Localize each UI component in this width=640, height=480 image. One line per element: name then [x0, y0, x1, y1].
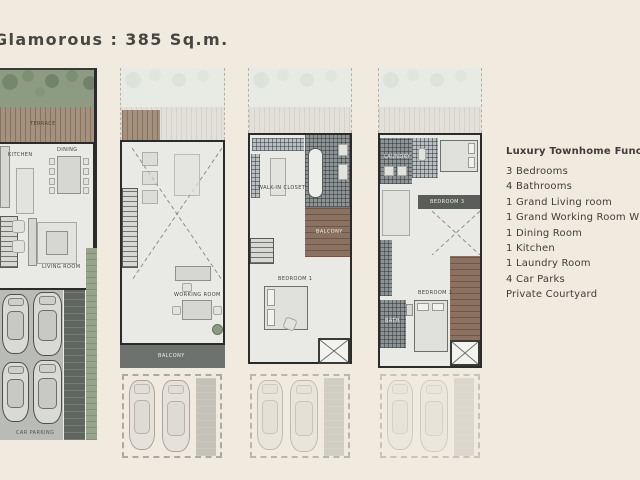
pillow	[267, 289, 275, 306]
car	[2, 294, 29, 354]
bathroom2	[380, 300, 406, 348]
ghost-courtyard	[249, 68, 351, 107]
ghost-courtyard	[379, 68, 481, 107]
car-roof	[134, 400, 151, 434]
closet-cabinet	[382, 190, 410, 236]
nightstand	[406, 304, 413, 316]
bedroom2-label: BEDROOM 2	[418, 290, 452, 296]
elevator-cross-icon	[320, 340, 348, 362]
armchair	[12, 240, 25, 253]
washing-machine	[384, 166, 394, 176]
ghost-terrace	[379, 107, 481, 133]
plant-icon	[212, 324, 223, 335]
private-courtyard	[0, 68, 97, 109]
dining-chair	[83, 178, 89, 185]
kitchen-island	[16, 168, 34, 214]
car-hood	[392, 384, 407, 393]
ghost-paved-strip	[324, 378, 344, 456]
wardrobe-run	[252, 138, 304, 151]
ghost-car	[290, 380, 318, 452]
upper-terrace-deck	[122, 110, 160, 140]
floorplan-presentation: Glamorous : 385 Sq.m. TERRACE KITCHEN DI…	[0, 0, 640, 480]
car-roof	[7, 311, 25, 340]
washing-machine	[397, 166, 407, 176]
stair-void-cross-icon	[432, 211, 480, 255]
car-roof	[7, 379, 25, 408]
ghost-car	[162, 380, 190, 452]
bathtub	[308, 148, 323, 198]
car	[2, 362, 29, 422]
dining-chair	[49, 168, 55, 175]
ghost-terrace	[249, 107, 351, 133]
elevator-shaft	[318, 338, 350, 364]
dining-chair	[49, 158, 55, 165]
pillow	[468, 143, 475, 154]
bath-label: BATH	[385, 318, 400, 324]
pillow	[432, 303, 444, 311]
car-hood	[262, 384, 277, 393]
balcony-label: BALCONY	[158, 353, 185, 359]
dining-chair	[83, 168, 89, 175]
plan-ground-floor: TERRACE KITCHEN DINING LIVING ROOM CAR P…	[0, 68, 97, 440]
dining-chair	[83, 187, 89, 194]
dining-chair	[49, 187, 55, 194]
elevator-shaft	[450, 340, 480, 366]
wardrobe-run	[251, 154, 260, 198]
working-desk	[175, 266, 211, 281]
bedroom1-label: BEDROOM 1	[278, 276, 312, 282]
walk-in-closet-label: WALK-IN CLOSET	[258, 185, 305, 191]
ghost-paved-strip	[454, 378, 474, 456]
dining-chair	[49, 178, 55, 185]
paved-strip	[64, 290, 85, 440]
staircase	[250, 238, 274, 264]
coffee-table	[46, 231, 68, 255]
car-roof	[392, 400, 409, 434]
feature-item: 4 Bathrooms	[506, 179, 640, 194]
ghost-car	[257, 380, 283, 450]
ghost-paved-strip	[196, 378, 216, 456]
ghost-courtyard	[121, 68, 224, 107]
pillow	[267, 309, 275, 326]
car-hood	[8, 298, 24, 306]
pillow	[468, 157, 475, 168]
feature-item: 1 Laundry Room	[506, 256, 640, 271]
ghost-car	[129, 380, 155, 450]
feature-item: 1 Dining Room	[506, 226, 640, 241]
ghost-cabinet	[142, 152, 158, 166]
working-room-label: WORKING ROOM	[174, 292, 221, 298]
car-roof	[295, 401, 313, 436]
plan-second-floor: WORKING ROOM BALCONY	[120, 68, 225, 460]
armchair	[12, 220, 25, 233]
balcony-label: BALCONY	[316, 229, 343, 235]
feature-item: 1 Grand Working Room With	[506, 210, 640, 225]
desk-chair	[213, 306, 222, 315]
page-title: Glamorous : 385 Sq.m.	[0, 30, 229, 49]
feature-list: Luxury Townhome Function : 3 Bedrooms 4 …	[506, 146, 640, 303]
car	[33, 360, 62, 424]
toilet	[338, 164, 348, 180]
pillow	[417, 303, 429, 311]
terrace-label: TERRACE	[30, 121, 56, 127]
dining-label: DINING	[57, 147, 78, 153]
feature-item: 1 Kitchen	[506, 241, 640, 256]
kitchen-label: KITCHEN	[8, 152, 32, 158]
dining-table	[57, 156, 81, 194]
plan-third-floor: WALK-IN CLOSET BALCONY BEDROOM 1	[248, 68, 352, 460]
bedroom3-label: BEDROOM 3	[430, 199, 464, 205]
living-room-label: LIVING ROOM	[42, 264, 80, 270]
staircase	[122, 188, 138, 268]
ghost-cabinet	[142, 190, 158, 204]
car-roof	[38, 378, 57, 409]
feature-list-heading: Luxury Townhome Function :	[506, 146, 640, 157]
car-hood	[8, 366, 24, 374]
feature-item: 4 Car Parks	[506, 272, 640, 287]
car-roof	[38, 310, 57, 341]
plan-fourth-floor: LAUNDRY BEDROOM 3 BEDROOM 2 BATH	[378, 68, 482, 460]
feature-item: 3 Bedrooms	[506, 164, 640, 179]
shelf-run	[380, 240, 392, 296]
feature-item: Private Courtyard	[506, 287, 640, 302]
side-garden-strip	[86, 248, 97, 440]
desk-chair	[172, 306, 181, 315]
dining-chair	[83, 158, 89, 165]
car-hood	[426, 385, 443, 395]
car-hood	[39, 364, 56, 373]
ghost-frame	[248, 68, 352, 133]
sofa-back	[28, 218, 37, 266]
car-hood	[39, 296, 56, 305]
car	[33, 292, 62, 356]
car-hood	[296, 385, 313, 395]
car-roof	[425, 401, 443, 436]
car-roof	[167, 401, 185, 436]
car-roof	[262, 400, 279, 434]
ghost-cabinet	[142, 171, 158, 185]
laundry-label: LAUNDRY	[384, 154, 411, 160]
laundry-room	[380, 138, 412, 184]
working-table	[182, 300, 212, 320]
ghost-dining-table	[174, 154, 200, 196]
elevator-cross-icon	[452, 342, 478, 364]
ghost-frame	[378, 68, 482, 133]
ghost-car	[387, 380, 413, 450]
car-hood	[134, 384, 149, 393]
desk-chair	[182, 283, 192, 292]
ghost-car	[420, 380, 448, 452]
car-parking-label: CAR PARKING	[16, 430, 54, 436]
feature-item: 1 Grand Living room	[506, 195, 640, 210]
washbasin	[338, 144, 348, 156]
car-hood	[168, 385, 185, 395]
toilet	[418, 148, 426, 161]
